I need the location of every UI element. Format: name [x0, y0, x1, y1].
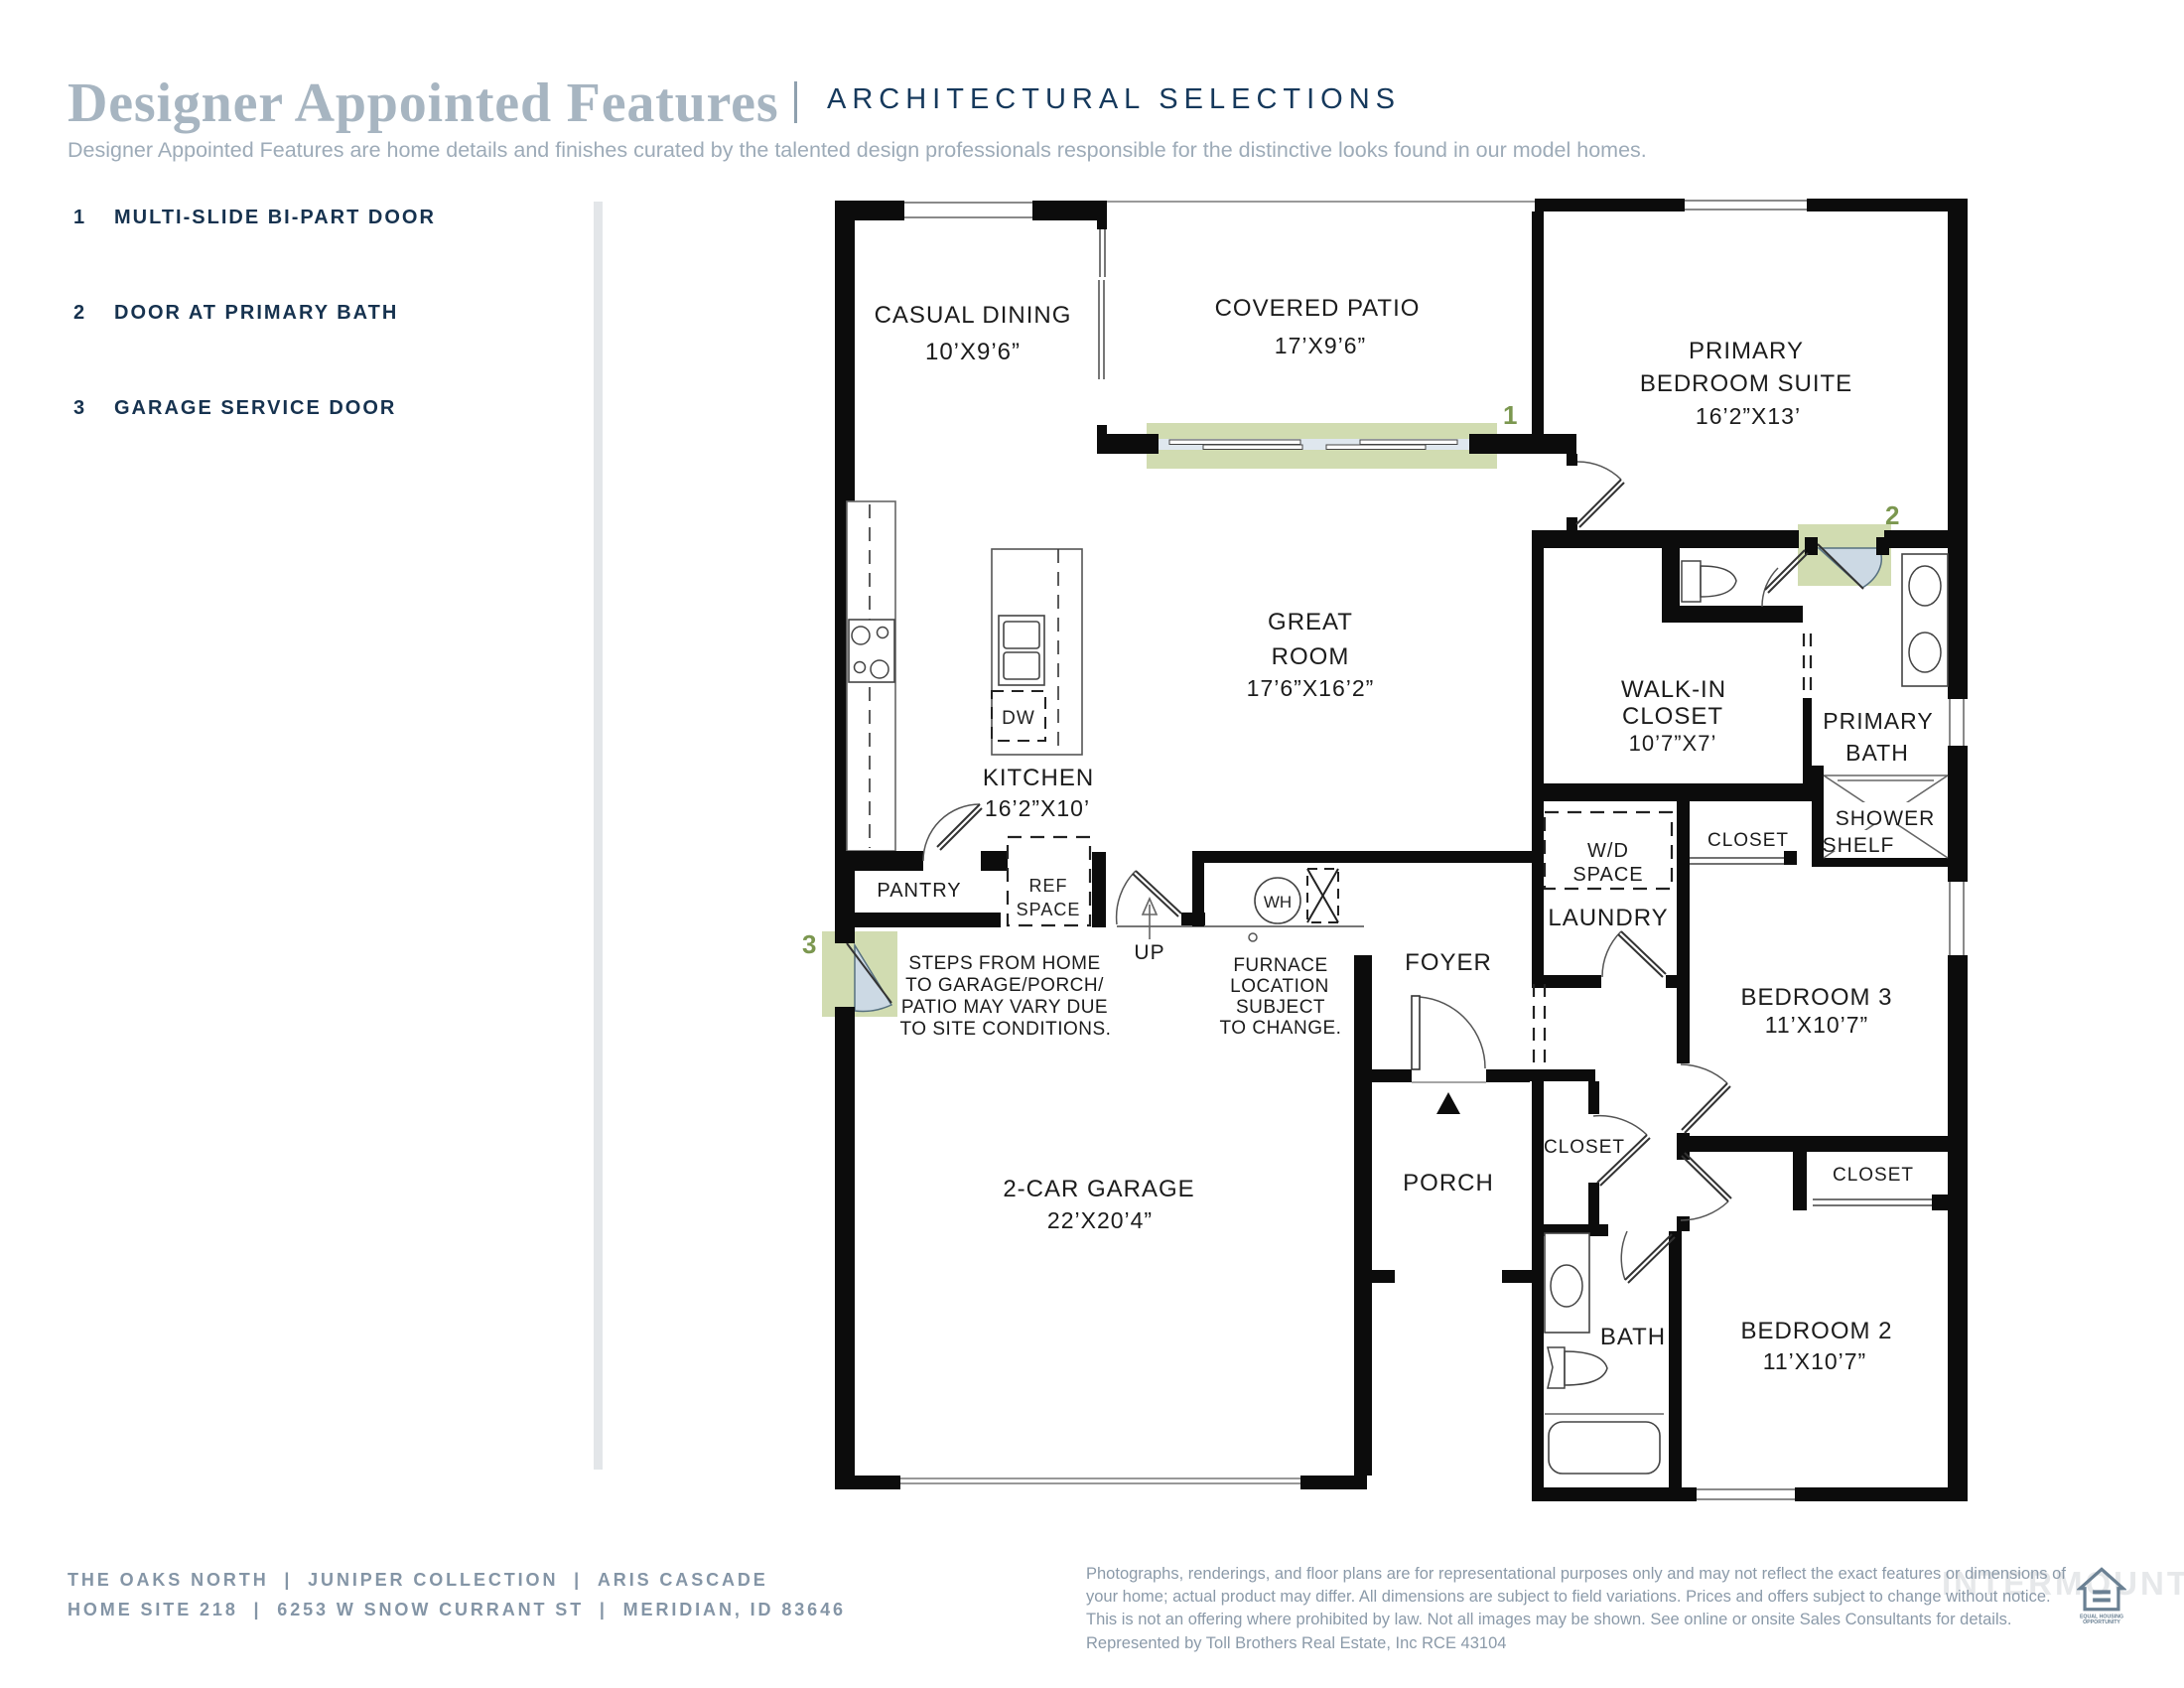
svg-text:DW: DW — [1002, 708, 1035, 729]
svg-text:FURNACE: FURNACE — [1233, 955, 1327, 976]
svg-text:SPACE: SPACE — [1017, 900, 1081, 919]
svg-text:CASUAL DINING: CASUAL DINING — [875, 302, 1072, 329]
svg-text:PORCH: PORCH — [1403, 1170, 1494, 1196]
svg-text:WH: WH — [1264, 893, 1292, 912]
svg-text:CLOSET: CLOSET — [1833, 1165, 1914, 1186]
svg-text:STEPS FROM HOME: STEPS FROM HOME — [908, 953, 1100, 974]
svg-text:CLOSET: CLOSET — [1622, 703, 1723, 730]
svg-text:10’X9’6”: 10’X9’6” — [925, 339, 1021, 365]
svg-text:PATIO MAY VARY DUE: PATIO MAY VARY DUE — [901, 997, 1108, 1018]
svg-text:22’X20’4”: 22’X20’4” — [1047, 1207, 1153, 1233]
svg-text:CLOSET: CLOSET — [1707, 830, 1789, 851]
svg-text:UP: UP — [1134, 941, 1164, 964]
svg-text:TO CHANGE.: TO CHANGE. — [1220, 1018, 1342, 1039]
svg-text:LAUNDRY: LAUNDRY — [1548, 905, 1668, 931]
svg-text:BATH: BATH — [1600, 1324, 1666, 1350]
svg-text:BEDROOM SUITE: BEDROOM SUITE — [1640, 370, 1852, 397]
svg-text:W/D: W/D — [1587, 840, 1629, 862]
svg-text:PRIMARY: PRIMARY — [1823, 708, 1933, 734]
svg-text:11’X10’7”: 11’X10’7” — [1765, 1012, 1868, 1038]
svg-text:FOYER: FOYER — [1405, 949, 1492, 976]
svg-text:REF: REF — [1029, 876, 1068, 896]
svg-text:COVERED PATIO: COVERED PATIO — [1215, 295, 1421, 322]
svg-text:ROOM: ROOM — [1272, 643, 1350, 670]
svg-text:GREAT: GREAT — [1268, 609, 1353, 635]
svg-text:PRIMARY: PRIMARY — [1689, 338, 1804, 364]
svg-text:PANTRY: PANTRY — [877, 880, 961, 902]
svg-text:BEDROOM 3: BEDROOM 3 — [1740, 984, 1892, 1011]
svg-text:2: 2 — [1885, 500, 1899, 530]
svg-text:16’2”X13’: 16’2”X13’ — [1696, 403, 1801, 429]
svg-text:SUBJECT: SUBJECT — [1236, 997, 1325, 1018]
svg-text:TO SITE CONDITIONS.: TO SITE CONDITIONS. — [900, 1019, 1112, 1040]
svg-text:SHOWER: SHOWER — [1836, 807, 1936, 830]
svg-text:1: 1 — [1503, 400, 1517, 430]
svg-text:WALK-IN: WALK-IN — [1621, 676, 1726, 703]
svg-text:CLOSET: CLOSET — [1544, 1137, 1625, 1158]
svg-text:16’2”X10’: 16’2”X10’ — [985, 795, 1090, 821]
svg-text:TO GARAGE/PORCH/: TO GARAGE/PORCH/ — [905, 975, 1104, 996]
svg-text:LOCATION: LOCATION — [1230, 976, 1329, 997]
svg-text:3: 3 — [802, 929, 816, 959]
svg-text:SHELF: SHELF — [1823, 834, 1895, 857]
svg-text:17’6”X16’2”: 17’6”X16’2” — [1247, 675, 1375, 701]
svg-text:17’X9’6”: 17’X9’6” — [1275, 333, 1366, 358]
svg-text:BEDROOM 2: BEDROOM 2 — [1740, 1318, 1892, 1344]
svg-text:10’7”X7’: 10’7”X7’ — [1629, 731, 1717, 756]
svg-text:SPACE: SPACE — [1572, 864, 1643, 886]
svg-text:BATH: BATH — [1845, 740, 1909, 766]
svg-text:2-CAR GARAGE: 2-CAR GARAGE — [1003, 1176, 1194, 1202]
svg-text:KITCHEN: KITCHEN — [983, 765, 1094, 791]
svg-text:11’X10’7”: 11’X10’7” — [1763, 1348, 1866, 1374]
